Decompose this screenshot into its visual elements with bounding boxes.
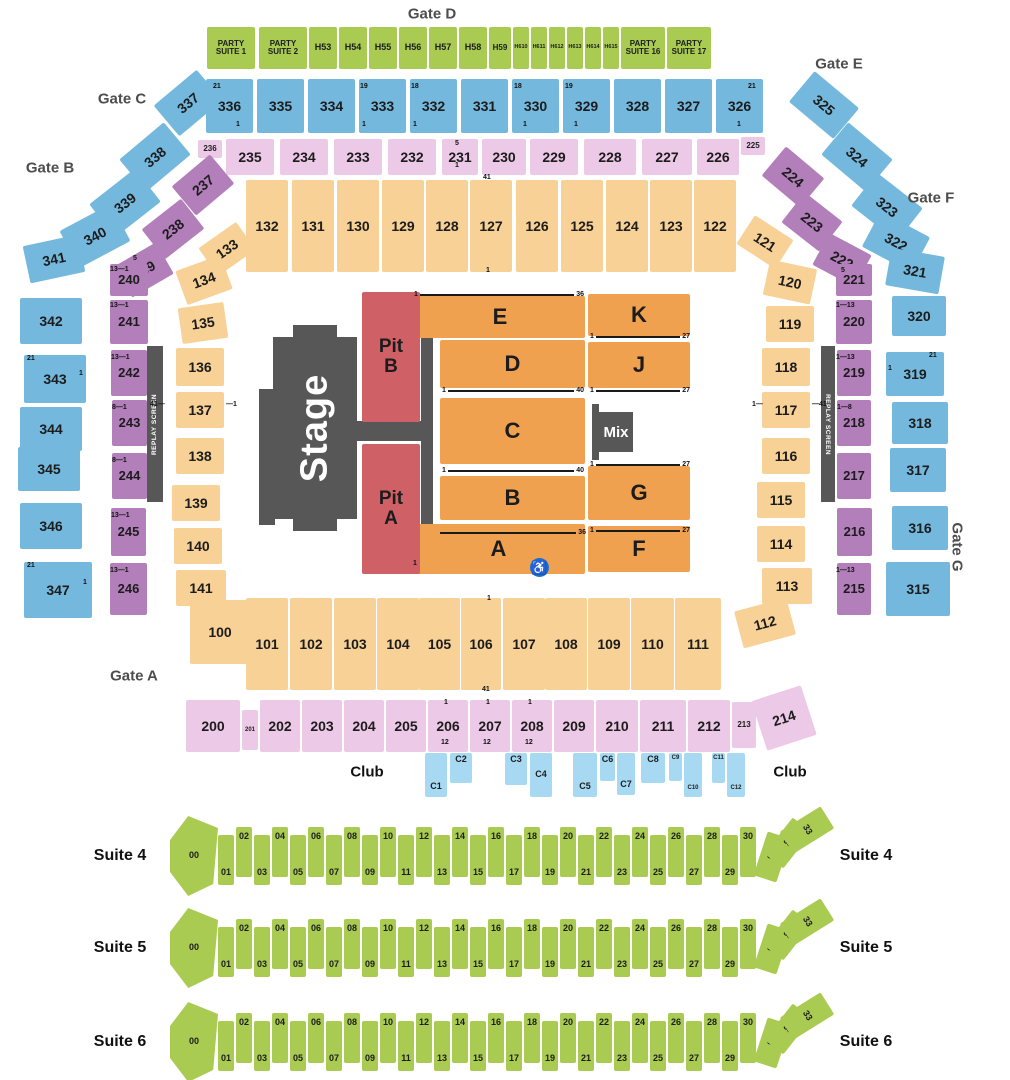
suite-5-box-30[interactable]: 30 <box>740 919 756 969</box>
section-d[interactable]: D <box>440 340 585 388</box>
suite-6-box-17[interactable]: 17 <box>506 1021 522 1071</box>
row-marker: 1 <box>413 121 417 128</box>
suite-4-box-30[interactable]: 30 <box>740 827 756 877</box>
section-party-suite-1[interactable]: PARTY SUITE 1 <box>207 27 255 69</box>
section-107[interactable]: 107 <box>503 598 545 690</box>
suite-6-box-20[interactable]: 20 <box>560 1013 576 1063</box>
section-100[interactable]: 100 <box>190 600 250 664</box>
row-range-marker: 140 <box>442 387 584 394</box>
suite-4-box-05[interactable]: 05 <box>290 835 306 885</box>
row-marker: 18 <box>514 83 522 90</box>
row-start: 1 <box>414 291 418 298</box>
row-marker: 1 <box>888 365 892 372</box>
suite-5-box-24[interactable]: 24 <box>632 919 648 969</box>
section-122[interactable]: 122 <box>694 180 736 272</box>
section-g[interactable]: G <box>588 466 690 520</box>
row-marker: 12 <box>525 739 533 746</box>
row-range-marker: 127 <box>590 527 690 534</box>
suite-5-label-left: Suite 5 <box>94 939 146 957</box>
suite-5-box-00[interactable]: 00 <box>170 908 218 988</box>
section-108[interactable]: 108 <box>545 598 587 690</box>
section-227[interactable]: 227 <box>642 139 692 175</box>
suite-4-box-00[interactable]: 00 <box>170 816 218 896</box>
row-marker: 5 <box>455 140 459 147</box>
section-131[interactable]: 131 <box>292 180 334 272</box>
suite-4-box-18[interactable]: 18 <box>524 827 540 877</box>
section-pit-a[interactable]: Pit A <box>362 444 420 574</box>
section-328[interactable]: 328 <box>614 79 661 133</box>
suite-6-box-24[interactable]: 24 <box>632 1013 648 1063</box>
row-marker: 13—1 <box>111 354 130 361</box>
section-party-suite-17[interactable]: PARTY SUITE 17 <box>667 27 711 69</box>
suite-4-box-07[interactable]: 07 <box>326 835 342 885</box>
row-marker: 21 <box>929 352 937 359</box>
section-party-suite-2[interactable]: PARTY SUITE 2 <box>259 27 307 69</box>
suite-5-box-05[interactable]: 05 <box>290 927 306 977</box>
section-102[interactable]: 102 <box>290 598 332 690</box>
section-136[interactable]: 136 <box>176 348 224 386</box>
suite-5-box-23[interactable]: 23 <box>614 927 630 977</box>
section-115[interactable]: 115 <box>757 482 805 518</box>
section-216[interactable]: 216 <box>837 508 872 556</box>
suite-6-box-16[interactable]: 16 <box>488 1013 504 1063</box>
mix-label: Mix <box>603 424 628 441</box>
row-marker: 13—1 <box>110 567 129 574</box>
suite-6-box-02[interactable]: 02 <box>236 1013 252 1063</box>
venue-seating-map: Stage Mix REPLAY SCREEN REPLAY SCREEN ♿ … <box>0 0 1010 1080</box>
gate-label-gate-d: Gate D <box>408 6 456 23</box>
suite-5-box-18[interactable]: 18 <box>524 919 540 969</box>
section-128[interactable]: 128 <box>426 180 468 272</box>
gate-label-gate-b: Gate B <box>26 160 74 177</box>
suite-6-box-30[interactable]: 30 <box>740 1013 756 1063</box>
row-marker: 1 <box>236 121 240 128</box>
mix-position: Mix <box>599 412 633 452</box>
section-103[interactable]: 103 <box>334 598 376 690</box>
section-334[interactable]: 334 <box>308 79 355 133</box>
suite-5-box-02[interactable]: 02 <box>236 919 252 969</box>
suite-5-box-29[interactable]: 29 <box>722 927 738 977</box>
row-marker: 1 <box>574 121 578 128</box>
section-118[interactable]: 118 <box>762 348 810 386</box>
suite-5-box-06[interactable]: 06 <box>308 919 324 969</box>
row-marker: —41 <box>812 401 827 408</box>
stage-block <box>259 389 275 525</box>
row-end: 27 <box>682 387 690 394</box>
section-316[interactable]: 316 <box>892 506 948 550</box>
suite-5-box-15[interactable]: 15 <box>470 927 486 977</box>
row-range-marker: 140 <box>442 467 584 474</box>
section-h614[interactable]: H614 <box>585 27 601 69</box>
section-135[interactable]: 135 <box>178 302 229 344</box>
section-231[interactable]: 231 <box>442 139 478 175</box>
suite-5-box-04[interactable]: 04 <box>272 919 288 969</box>
section-205[interactable]: 205 <box>386 700 426 752</box>
row-marker: 1 <box>528 699 532 706</box>
row-range-marker: 127 <box>590 333 690 340</box>
suite-4-box-02[interactable]: 02 <box>236 827 252 877</box>
suite-5-box-28[interactable]: 28 <box>704 919 720 969</box>
section-125[interactable]: 125 <box>561 180 603 272</box>
section-b[interactable]: B <box>440 476 585 520</box>
suite-4-box-27[interactable]: 27 <box>686 835 702 885</box>
suite-4-box-11[interactable]: 11 <box>398 835 414 885</box>
section-204[interactable]: 204 <box>344 700 384 752</box>
section-c11[interactable]: C11 <box>712 753 725 783</box>
section-k[interactable]: K <box>588 294 690 336</box>
row-range-marker: 136 <box>414 291 584 298</box>
row-marker: 1 <box>413 560 417 567</box>
section-c10[interactable]: C10 <box>684 753 702 797</box>
row-start: 1 <box>590 527 594 534</box>
suite-4-box-01[interactable]: 01 <box>218 835 234 885</box>
stage-block <box>293 517 337 531</box>
section-e[interactable]: E <box>415 296 585 338</box>
gate-label-gate-a: Gate A <box>110 668 158 685</box>
replay-screen-left: REPLAY SCREEN <box>147 346 163 502</box>
suite-4-box-29[interactable]: 29 <box>722 835 738 885</box>
suite-4-box-21[interactable]: 21 <box>578 835 594 885</box>
suite-6-box-10[interactable]: 10 <box>380 1013 396 1063</box>
suite-5-box-01[interactable]: 01 <box>218 927 234 977</box>
section-209[interactable]: 209 <box>554 700 594 752</box>
suite-4-box-06[interactable]: 06 <box>308 827 324 877</box>
row-marker: 13—1 <box>110 266 129 273</box>
suite-4-box-09[interactable]: 09 <box>362 835 378 885</box>
suite-6-box-00[interactable]: 00 <box>170 1002 218 1080</box>
suite-6-box-09[interactable]: 09 <box>362 1021 378 1071</box>
section-331[interactable]: 331 <box>461 79 508 133</box>
section-119[interactable]: 119 <box>766 306 814 342</box>
suite-4-box-08[interactable]: 08 <box>344 827 360 877</box>
section-347[interactable]: 347 <box>24 562 92 618</box>
suite-6-box-13[interactable]: 13 <box>434 1021 450 1071</box>
suite-4-box-04[interactable]: 04 <box>272 827 288 877</box>
stage-block <box>293 325 337 339</box>
section-c1[interactable]: C1 <box>425 753 447 797</box>
row-marker: 41 <box>482 686 490 693</box>
suite-6-box-25[interactable]: 25 <box>650 1021 666 1071</box>
section-h611[interactable]: H611 <box>531 27 547 69</box>
section-318[interactable]: 318 <box>892 402 948 444</box>
row-marker: 21 <box>748 83 756 90</box>
mix-position <box>592 404 599 460</box>
section-c5[interactable]: C5 <box>573 753 597 797</box>
suite-6-box-04[interactable]: 04 <box>272 1013 288 1063</box>
section-234[interactable]: 234 <box>280 139 328 175</box>
suite-6-box-07[interactable]: 07 <box>326 1021 342 1071</box>
suite-4-box-15[interactable]: 15 <box>470 835 486 885</box>
suite-5-box-22[interactable]: 22 <box>596 919 612 969</box>
row-marker: 1 <box>79 370 83 377</box>
section-h613[interactable]: H613 <box>567 27 583 69</box>
suite-4-box-24[interactable]: 24 <box>632 827 648 877</box>
suite-5-box-14[interactable]: 14 <box>452 919 468 969</box>
suite-6-box-29[interactable]: 29 <box>722 1021 738 1071</box>
section-j[interactable]: J <box>588 342 690 388</box>
row-start: 1 <box>590 387 594 394</box>
section-112[interactable]: 112 <box>734 598 796 649</box>
row-marker: 21 <box>27 355 35 362</box>
section-h56[interactable]: H56 <box>399 27 427 69</box>
section-116[interactable]: 116 <box>762 438 810 474</box>
row-marker: 1 <box>486 267 490 274</box>
suite-6-box-28[interactable]: 28 <box>704 1013 720 1063</box>
suite-6-box-21[interactable]: 21 <box>578 1021 594 1071</box>
suite-4-box-03[interactable]: 03 <box>254 835 270 885</box>
section-342[interactable]: 342 <box>20 298 82 344</box>
section-320[interactable]: 320 <box>892 296 946 336</box>
section-c4[interactable]: C4 <box>530 753 552 797</box>
row-start: 1 <box>442 467 446 474</box>
section-212[interactable]: 212 <box>688 700 730 752</box>
section-c3[interactable]: C3 <box>505 753 527 785</box>
row-marker: 1—13 <box>836 302 855 309</box>
suite-5-box-19[interactable]: 19 <box>542 927 558 977</box>
section-105[interactable]: 105 <box>419 598 460 690</box>
section-h54[interactable]: H54 <box>339 27 367 69</box>
row-marker: 1 <box>362 121 366 128</box>
suite-6-label-left: Suite 6 <box>94 1033 146 1051</box>
section-111[interactable]: 111 <box>675 598 721 690</box>
stage-label: Stage <box>294 374 337 482</box>
section-232[interactable]: 232 <box>388 139 436 175</box>
row-marker: 8—1 <box>112 457 127 464</box>
section-214[interactable]: 214 <box>751 685 817 751</box>
section-200[interactable]: 200 <box>186 700 240 752</box>
row-marker: 1—13 <box>836 567 855 574</box>
suite-6-box-14[interactable]: 14 <box>452 1013 468 1063</box>
row-marker: 1 <box>444 699 448 706</box>
suite-6-box-03[interactable]: 03 <box>254 1021 270 1071</box>
section-229[interactable]: 229 <box>530 139 578 175</box>
row-marker: 41 <box>483 174 491 181</box>
row-marker: 1 <box>523 121 527 128</box>
suite-4-box-28[interactable]: 28 <box>704 827 720 877</box>
section-114[interactable]: 114 <box>757 526 805 562</box>
section-341[interactable]: 341 <box>23 235 86 284</box>
suite-5-box-17[interactable]: 17 <box>506 927 522 977</box>
section-127[interactable]: 127 <box>470 180 512 272</box>
suite-4-box-22[interactable]: 22 <box>596 827 612 877</box>
row-end: 36 <box>578 529 586 536</box>
row-marker: 1 <box>487 595 491 602</box>
section-h615[interactable]: H615 <box>603 27 619 69</box>
section-233[interactable]: 233 <box>334 139 382 175</box>
section-335[interactable]: 335 <box>257 79 304 133</box>
section-138[interactable]: 138 <box>176 438 224 474</box>
section-h59[interactable]: H59 <box>489 27 511 69</box>
suite-4-box-19[interactable]: 19 <box>542 835 558 885</box>
section-224[interactable]: 224 <box>762 146 825 207</box>
section-h53[interactable]: H53 <box>309 27 337 69</box>
row-end: 40 <box>576 387 584 394</box>
row-end: 27 <box>682 333 690 340</box>
suite-5-box-12[interactable]: 12 <box>416 919 432 969</box>
suite-4-label-right: Suite 4 <box>840 847 892 865</box>
section-c9[interactable]: C9 <box>669 753 682 781</box>
replay-screen-right: REPLAY SCREEN <box>821 346 835 502</box>
section-124[interactable]: 124 <box>606 180 648 272</box>
suite-5-box-08[interactable]: 08 <box>344 919 360 969</box>
row-range-marker: 127 <box>590 461 690 468</box>
suite-6-box-19[interactable]: 19 <box>542 1021 558 1071</box>
gate-label-gate-c: Gate C <box>98 91 146 108</box>
section-h612[interactable]: H612 <box>549 27 565 69</box>
row-marker: 1—8 <box>837 404 852 411</box>
suite-4-box-25[interactable]: 25 <box>650 835 666 885</box>
section-109[interactable]: 109 <box>588 598 630 690</box>
club-label-left: Club <box>350 764 383 781</box>
section-h57[interactable]: H57 <box>429 27 457 69</box>
gate-label-gate-f: Gate F <box>908 190 955 207</box>
section-203[interactable]: 203 <box>302 700 342 752</box>
suite-4-box-12[interactable]: 12 <box>416 827 432 877</box>
section-104[interactable]: 104 <box>377 598 419 690</box>
section-343[interactable]: 343 <box>24 355 86 403</box>
section-344[interactable]: 344 <box>20 407 82 451</box>
suite-6-box-01[interactable]: 01 <box>218 1021 234 1071</box>
section-225[interactable]: 225 <box>741 137 765 155</box>
section-228[interactable]: 228 <box>584 139 636 175</box>
row-end: 27 <box>682 461 690 468</box>
section-c2[interactable]: C2 <box>450 753 472 783</box>
suite-4-box-20[interactable]: 20 <box>560 827 576 877</box>
suite-5-box-10[interactable]: 10 <box>380 919 396 969</box>
suite-5-box-16[interactable]: 16 <box>488 919 504 969</box>
row-end: 27 <box>682 527 690 534</box>
row-marker: 1 <box>455 162 459 169</box>
suite-4-box-10[interactable]: 10 <box>380 827 396 877</box>
section-101[interactable]: 101 <box>246 598 288 690</box>
suite-5-box-25[interactable]: 25 <box>650 927 666 977</box>
section-132[interactable]: 132 <box>246 180 288 272</box>
section-226[interactable]: 226 <box>697 139 739 175</box>
section-c6[interactable]: C6 <box>600 753 615 781</box>
row-marker: 5 <box>841 267 845 274</box>
suite-4-box-13[interactable]: 13 <box>434 835 450 885</box>
section-c[interactable]: C <box>440 398 585 464</box>
suite-4-box-17[interactable]: 17 <box>506 835 522 885</box>
row-marker: 12 <box>441 739 449 746</box>
section-217[interactable]: 217 <box>837 453 871 499</box>
row-start: 1 <box>590 333 594 340</box>
section-106[interactable]: 106 <box>461 598 501 690</box>
suite-6-label-right: Suite 6 <box>840 1033 892 1051</box>
club-label-right: Club <box>773 764 806 781</box>
suite-5-box-26[interactable]: 26 <box>668 919 684 969</box>
section-120[interactable]: 120 <box>763 259 817 304</box>
section-345[interactable]: 345 <box>18 447 80 491</box>
row-marker: 1—13 <box>836 354 855 361</box>
section-327[interactable]: 327 <box>665 79 712 133</box>
section-c12[interactable]: C12 <box>727 753 745 797</box>
suite-5-box-21[interactable]: 21 <box>578 927 594 977</box>
section-129[interactable]: 129 <box>382 180 424 272</box>
section-213[interactable]: 213 <box>732 702 756 748</box>
row-range-marker: 36 <box>438 529 586 536</box>
suite-5-box-27[interactable]: 27 <box>686 927 702 977</box>
section-210[interactable]: 210 <box>596 700 638 752</box>
row-marker: 18 <box>411 83 419 90</box>
suite-4-label-left: Suite 4 <box>94 847 146 865</box>
section-113[interactable]: 113 <box>762 568 812 604</box>
section-h58[interactable]: H58 <box>459 27 487 69</box>
stage-runway <box>421 318 433 548</box>
suite-5-box-09[interactable]: 09 <box>362 927 378 977</box>
suite-6-box-15[interactable]: 15 <box>470 1021 486 1071</box>
section-h610[interactable]: H610 <box>513 27 529 69</box>
suite-6-box-06[interactable]: 06 <box>308 1013 324 1063</box>
section-c8[interactable]: C8 <box>641 753 665 783</box>
suite-6-box-18[interactable]: 18 <box>524 1013 540 1063</box>
row-marker: 12 <box>483 739 491 746</box>
section-pit-b[interactable]: Pit B <box>362 292 420 422</box>
suite-5-box-20[interactable]: 20 <box>560 919 576 969</box>
suite-6-box-12[interactable]: 12 <box>416 1013 432 1063</box>
suite-6-box-26[interactable]: 26 <box>668 1013 684 1063</box>
suite-5-box-13[interactable]: 13 <box>434 927 450 977</box>
row-end: 40 <box>576 467 584 474</box>
section-230[interactable]: 230 <box>482 139 526 175</box>
suite-6-box-27[interactable]: 27 <box>686 1021 702 1071</box>
section-c7[interactable]: C7 <box>617 753 635 795</box>
row-marker: 8—1 <box>112 404 127 411</box>
suite-4-box-23[interactable]: 23 <box>614 835 630 885</box>
section-h55[interactable]: H55 <box>369 27 397 69</box>
suite-4-box-14[interactable]: 14 <box>452 827 468 877</box>
row-end: 36 <box>576 291 584 298</box>
row-marker: 1— <box>752 401 763 408</box>
row-marker: 21 <box>27 562 35 569</box>
suite-5-box-11[interactable]: 11 <box>398 927 414 977</box>
section-130[interactable]: 130 <box>337 180 379 272</box>
suite-5-box-07[interactable]: 07 <box>326 927 342 977</box>
section-party-suite-16[interactable]: PARTY SUITE 16 <box>621 27 665 69</box>
suite-6-box-23[interactable]: 23 <box>614 1021 630 1071</box>
section-235[interactable]: 235 <box>226 139 274 175</box>
section-137[interactable]: 137 <box>176 392 224 428</box>
row-marker: 1 <box>83 579 87 586</box>
row-start: 1 <box>590 461 594 468</box>
section-126[interactable]: 126 <box>516 180 558 272</box>
section-140[interactable]: 140 <box>174 528 222 564</box>
suite-4-box-16[interactable]: 16 <box>488 827 504 877</box>
wheelchair-glyph: ♿ <box>531 560 547 576</box>
section-202[interactable]: 202 <box>260 700 300 752</box>
section-317[interactable]: 317 <box>890 448 946 492</box>
suite-5-box-03[interactable]: 03 <box>254 927 270 977</box>
section-139[interactable]: 139 <box>172 485 220 521</box>
section-123[interactable]: 123 <box>650 180 692 272</box>
section-315[interactable]: 315 <box>886 562 950 616</box>
suite-6-box-05[interactable]: 05 <box>290 1021 306 1071</box>
row-start: 1 <box>442 387 446 394</box>
suite-6-box-11[interactable]: 11 <box>398 1021 414 1071</box>
suite-6-box-22[interactable]: 22 <box>596 1013 612 1063</box>
section-346[interactable]: 346 <box>20 503 82 549</box>
section-321[interactable]: 321 <box>885 248 945 295</box>
suite-4-box-26[interactable]: 26 <box>668 827 684 877</box>
row-marker: 1 <box>486 699 490 706</box>
section-211[interactable]: 211 <box>640 700 686 752</box>
section-201[interactable]: 201 <box>242 710 258 750</box>
suite-6-box-08[interactable]: 08 <box>344 1013 360 1063</box>
row-marker: —1 <box>226 401 237 408</box>
section-110[interactable]: 110 <box>631 598 674 690</box>
section-117[interactable]: 117 <box>762 392 810 428</box>
gate-label-gate-e: Gate E <box>815 56 863 73</box>
